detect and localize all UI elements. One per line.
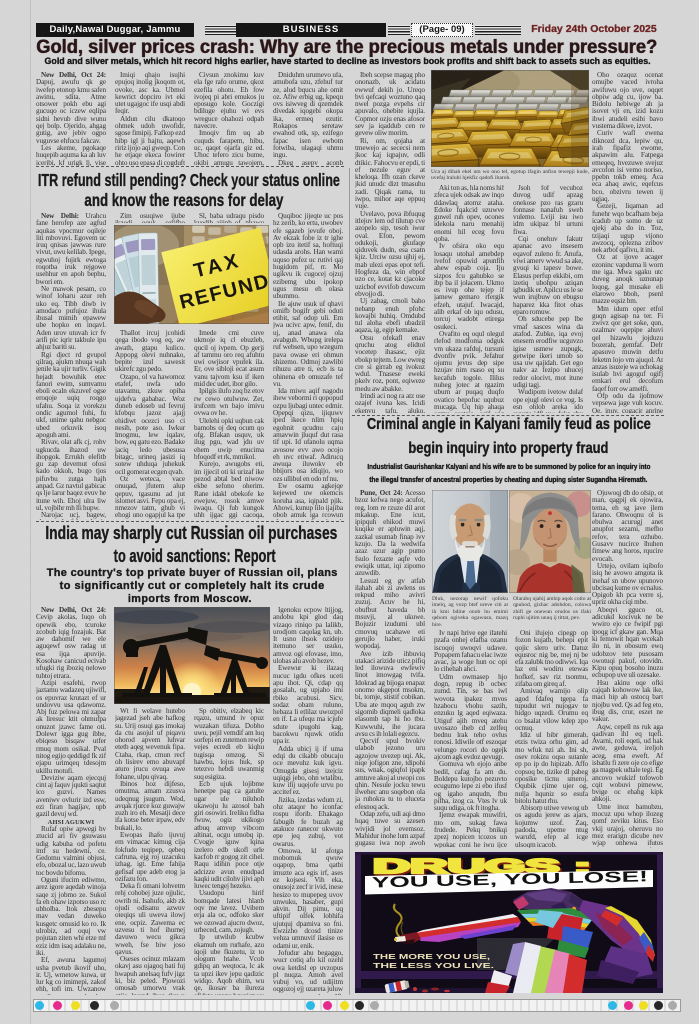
- svg-text:THE LESS YOU LIVE.: THE LESS YOU LIVE.: [373, 961, 494, 970]
- svg-text:THE MORE YOU USE,: THE MORE YOU USE,: [373, 952, 490, 961]
